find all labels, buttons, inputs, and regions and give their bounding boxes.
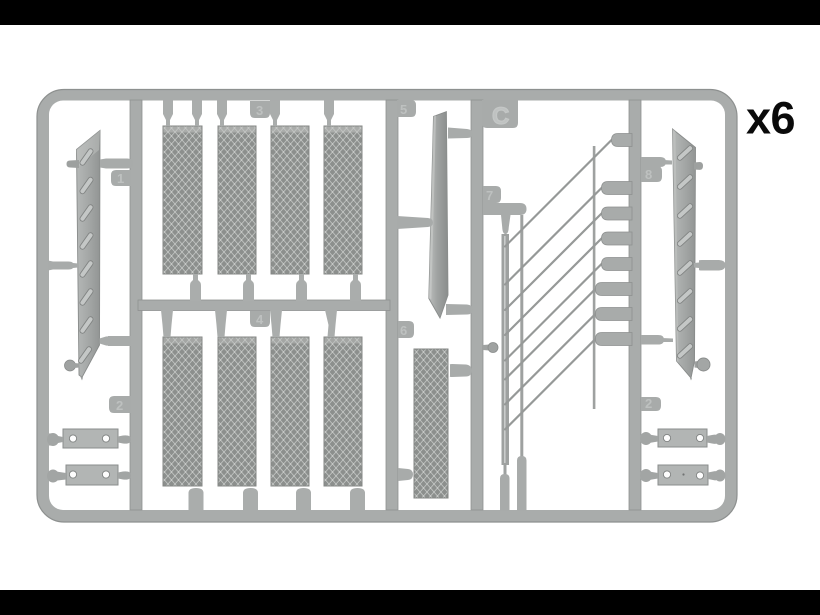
svg-text:C: C [492,103,509,130]
svg-text:5: 5 [400,102,407,117]
svg-text:2: 2 [116,398,123,413]
svg-text:1: 1 [117,171,124,186]
svg-text:x6: x6 [746,93,795,144]
svg-text:4: 4 [256,312,264,327]
svg-text:6: 6 [400,323,407,338]
svg-text:2: 2 [645,396,652,411]
svg-text:8: 8 [645,167,652,182]
svg-text:7: 7 [486,188,493,203]
svg-text:3: 3 [256,103,263,118]
